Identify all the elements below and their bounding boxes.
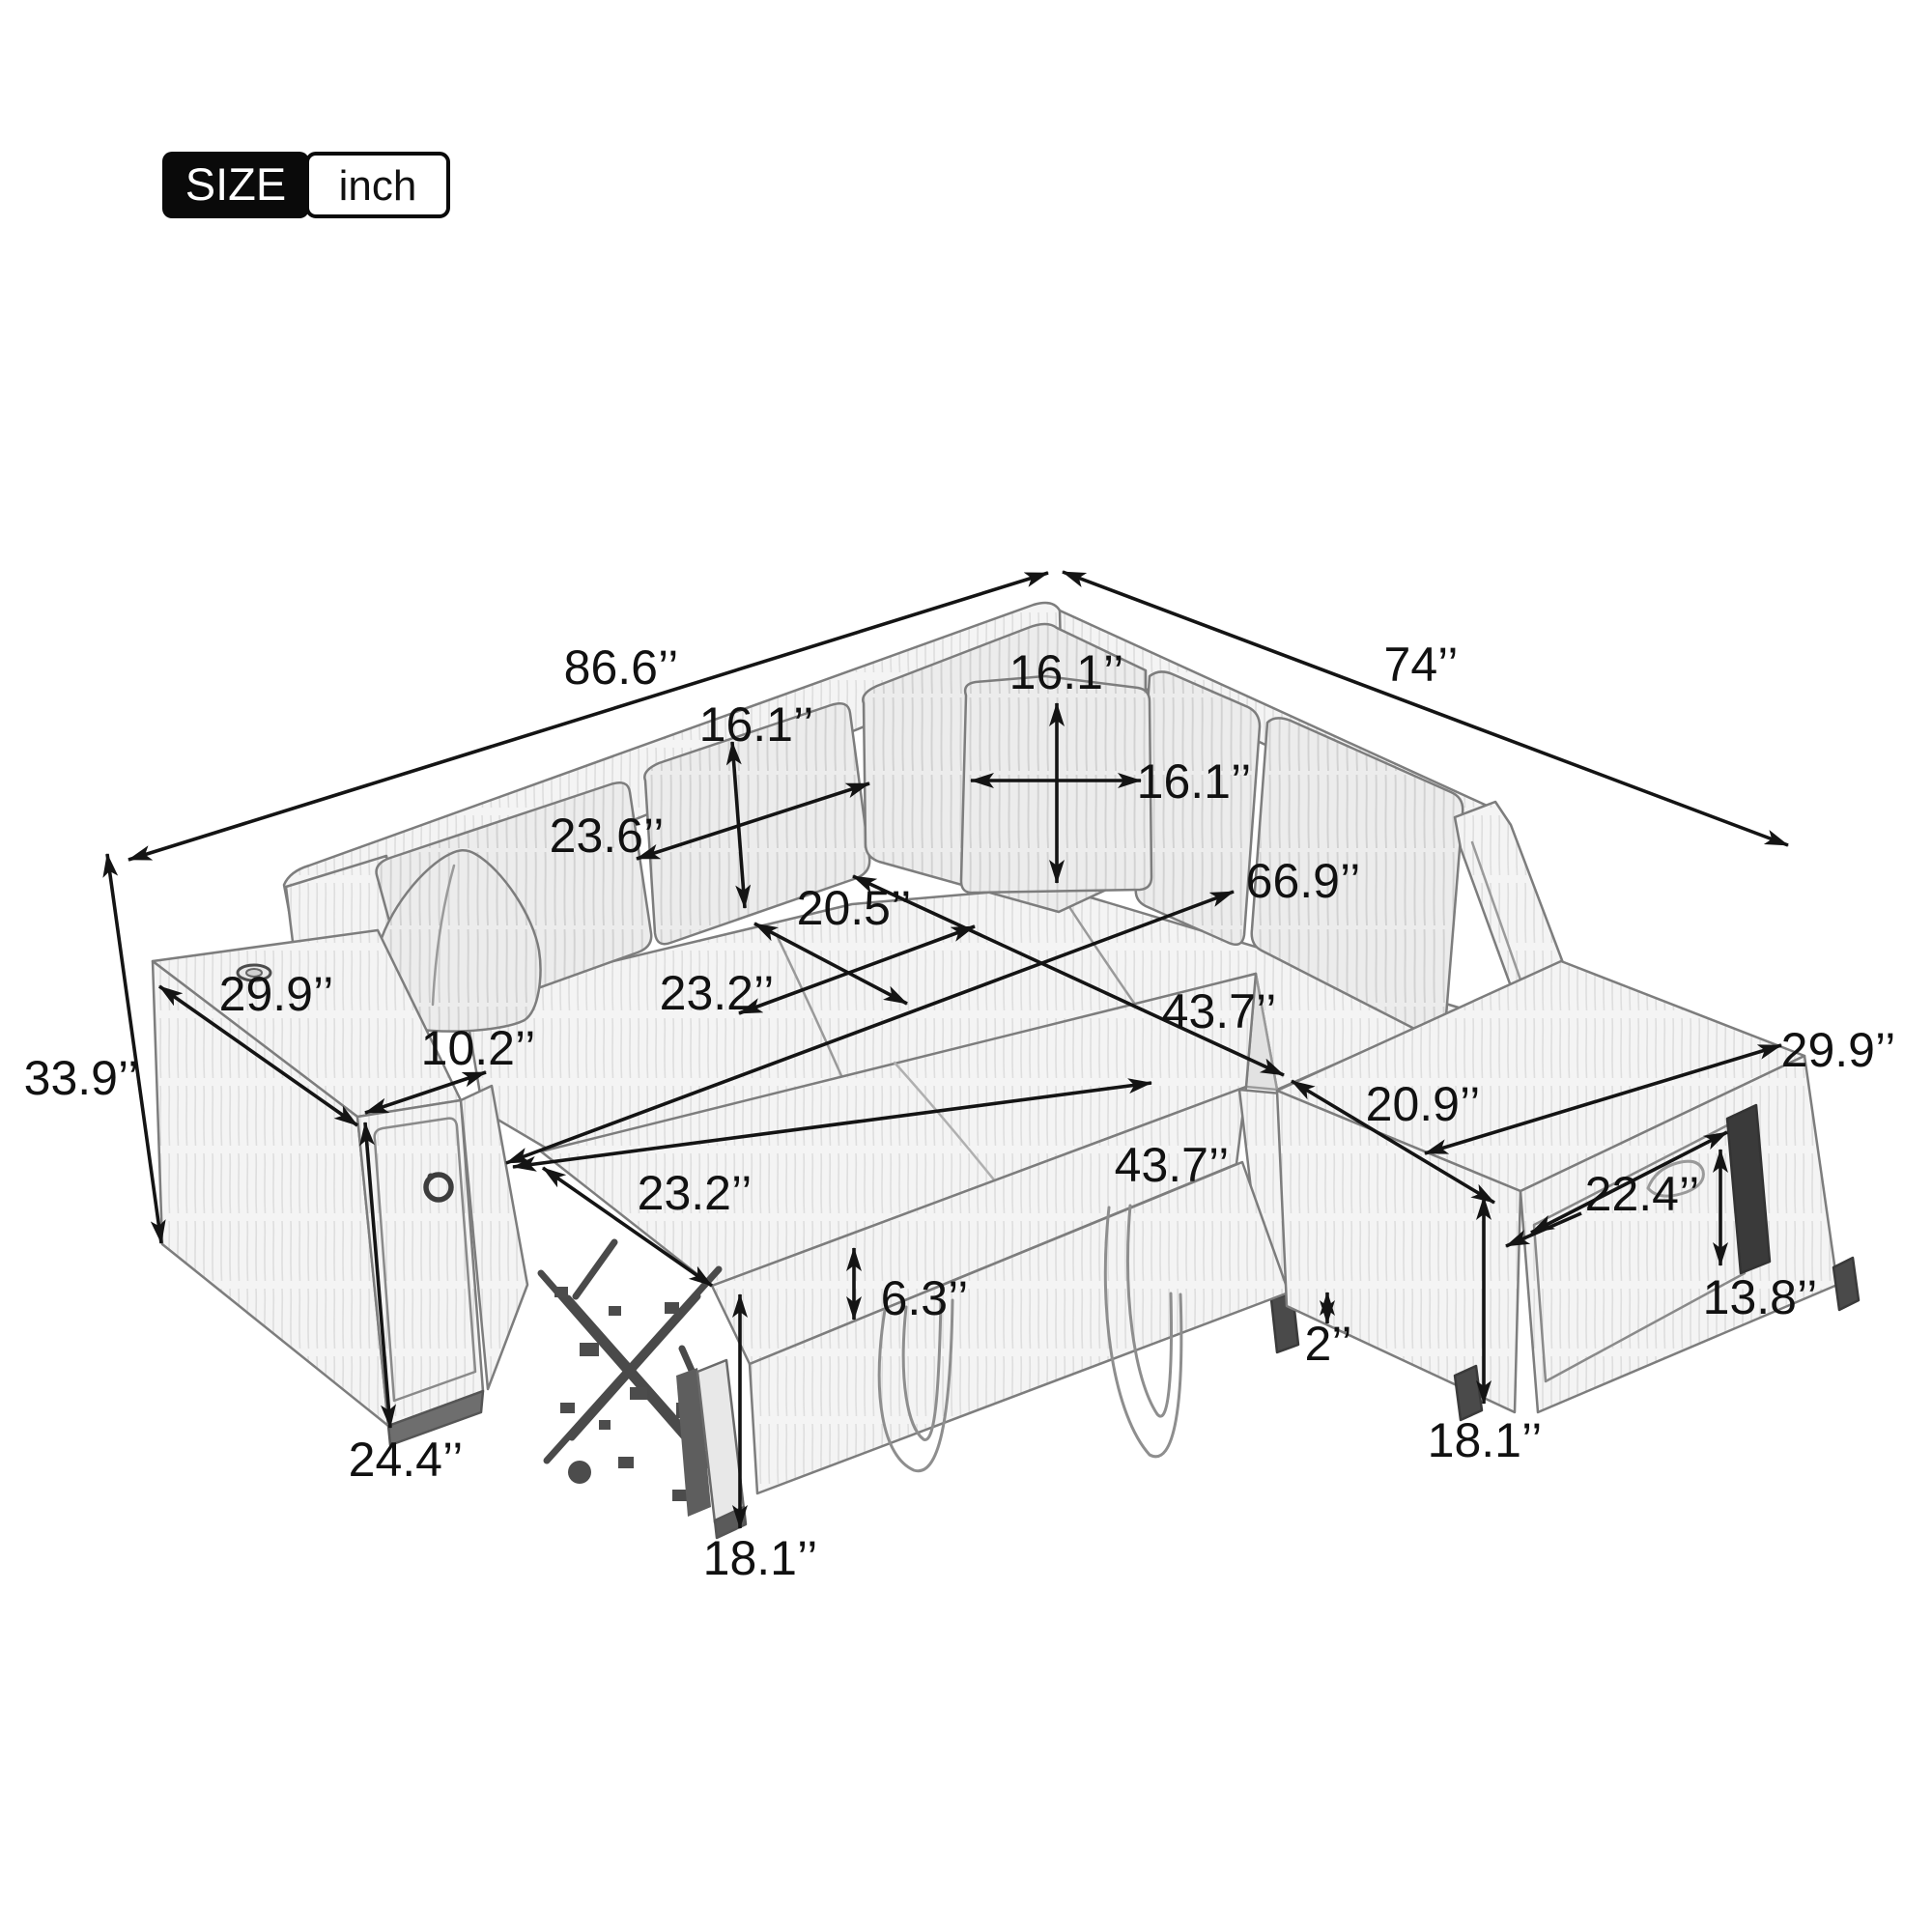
- svg-text:16.1’’: 16.1’’: [1009, 645, 1124, 699]
- svg-text:23.6’’: 23.6’’: [550, 809, 665, 863]
- svg-text:43.7’’: 43.7’’: [1162, 984, 1277, 1038]
- svg-text:10.2’’: 10.2’’: [421, 1021, 536, 1075]
- svg-text:16.1’’: 16.1’’: [1137, 754, 1252, 809]
- svg-text:43.7’’: 43.7’’: [1115, 1138, 1230, 1192]
- svg-text:29.9’’: 29.9’’: [219, 967, 334, 1021]
- svg-text:86.6’’: 86.6’’: [564, 640, 679, 695]
- svg-text:16.1’’: 16.1’’: [699, 697, 814, 752]
- svg-text:23.2’’: 23.2’’: [660, 966, 775, 1020]
- svg-text:18.1’’: 18.1’’: [703, 1531, 818, 1585]
- svg-text:18.1’’: 18.1’’: [1428, 1413, 1543, 1467]
- svg-text:2’’: 2’’: [1304, 1317, 1351, 1371]
- svg-text:inch: inch: [339, 162, 417, 210]
- svg-text:33.9’’: 33.9’’: [24, 1051, 139, 1105]
- svg-text:20.9’’: 20.9’’: [1366, 1077, 1481, 1131]
- svg-text:SIZE: SIZE: [185, 158, 286, 210]
- svg-text:22.4’’: 22.4’’: [1585, 1167, 1700, 1221]
- svg-text:24.4’’: 24.4’’: [349, 1433, 464, 1487]
- svg-text:66.9’’: 66.9’’: [1246, 854, 1361, 908]
- svg-text:6.3’’: 6.3’’: [881, 1271, 969, 1325]
- svg-text:23.2’’: 23.2’’: [638, 1166, 753, 1220]
- svg-text:20.5’’: 20.5’’: [797, 881, 912, 935]
- svg-text:13.8’’: 13.8’’: [1703, 1270, 1818, 1324]
- svg-text:29.9’’: 29.9’’: [1781, 1023, 1896, 1077]
- svg-text:74’’: 74’’: [1384, 638, 1459, 692]
